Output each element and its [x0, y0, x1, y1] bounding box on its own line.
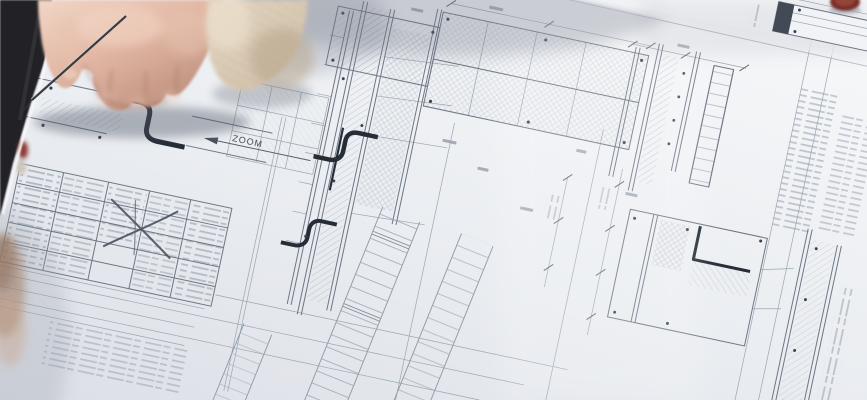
- push-pin: [829, 0, 861, 14]
- fist-shadow: [34, 106, 250, 138]
- photo-scene: ZOOM: [0, 0, 867, 400]
- light-band: [500, 0, 700, 400]
- sleeve-cuff: [206, 0, 314, 90]
- photo-canvas: ZOOM: [0, 0, 867, 400]
